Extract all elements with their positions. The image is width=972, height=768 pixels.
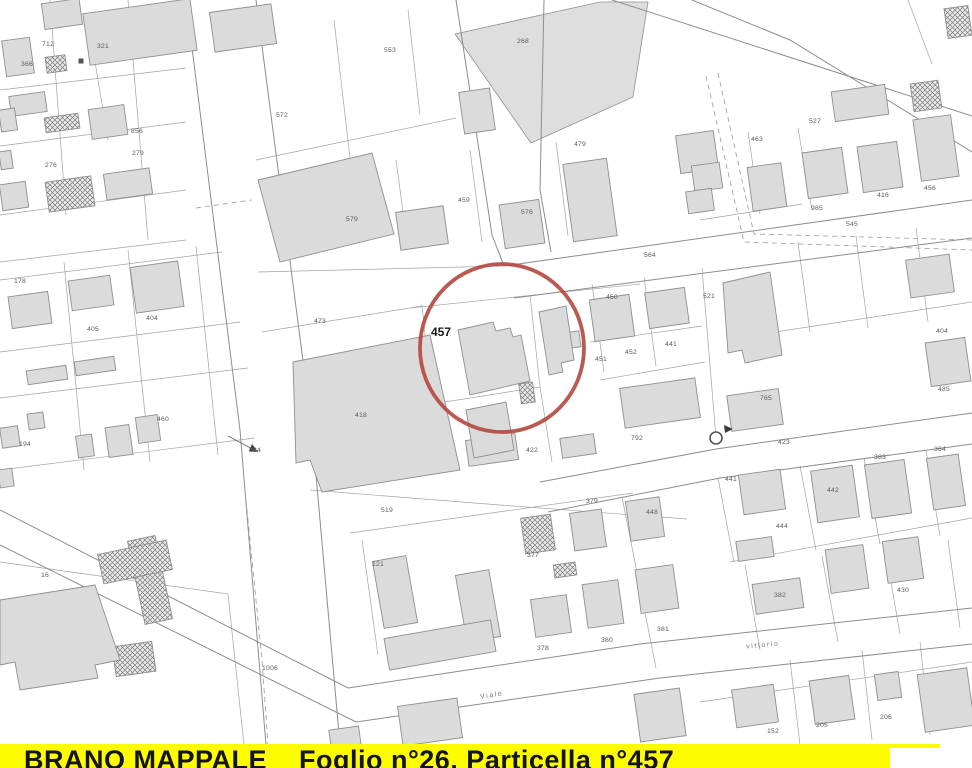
parcel-number-label: 451 [595, 356, 607, 363]
dashed-boundary [246, 500, 268, 745]
building-footprint [727, 389, 784, 432]
parcel-number-label: 378 [537, 645, 549, 652]
parcel-number-label: 450 [606, 294, 618, 301]
building-footprint [560, 434, 596, 459]
parcel-number-label: 712 [42, 41, 54, 48]
parcel-number-label: 194 [19, 441, 31, 448]
parcel-boundary [862, 650, 872, 740]
building-footprint [864, 460, 911, 519]
parcel-number-label: 463 [751, 136, 763, 143]
parcel-number-label: 279 [132, 150, 144, 157]
parcel-number-label: 456 [924, 185, 936, 192]
building-footprint [625, 497, 664, 541]
building-footprint [0, 468, 14, 488]
parcel-number-label: 442 [827, 487, 839, 494]
parcel-boundary [228, 594, 244, 745]
parcel-number-label: 579 [346, 216, 358, 223]
building-footprint [738, 469, 785, 514]
building-footprint [874, 672, 901, 701]
parcel-number-label: 382 [774, 592, 786, 599]
building-footprint [499, 199, 545, 248]
building-footprint [0, 181, 29, 210]
parcel-number-label: 576 [521, 209, 533, 216]
building-footprint [0, 108, 18, 132]
parcel-number-label: 545 [846, 221, 858, 228]
parcel-number-label: 856 [131, 128, 143, 135]
road-edge [186, 0, 266, 745]
building-footprint [925, 337, 971, 386]
building-footprint-hatched [521, 514, 556, 554]
dashed-boundary [196, 200, 252, 208]
parcel-number-label: 479 [574, 141, 586, 148]
parcel-number-label: 121 [372, 561, 384, 568]
building-footprint [582, 580, 624, 629]
parcel-number-label: 527 [809, 118, 821, 125]
building-footprint [0, 150, 13, 169]
building-footprint [563, 158, 617, 241]
building-footprint [747, 163, 787, 211]
building-footprint [634, 688, 686, 742]
building-footprint [459, 88, 496, 134]
parcel-boundary [408, 10, 420, 115]
parcel-number-label: 441 [725, 476, 737, 483]
parcel-number-label: 1006 [262, 665, 278, 672]
parcel-boundary [334, 20, 350, 158]
parcel-boundary [718, 478, 734, 562]
well-symbol [710, 432, 722, 444]
building-footprint [0, 426, 20, 448]
parcel-number-label: 383 [874, 454, 886, 461]
highlighted-parcel-number: 457 [431, 325, 451, 339]
building-footprint [398, 698, 463, 745]
building-footprint [686, 188, 715, 213]
building-footprint [811, 465, 860, 522]
parcel-number-label: 473 [314, 318, 326, 325]
parcel-boundary [362, 540, 378, 655]
building-footprint [691, 162, 722, 192]
parcel-number-label: 377 [527, 552, 539, 559]
building-footprint [26, 365, 68, 384]
building-footprint-hatched [45, 55, 67, 74]
parcel-boundary [0, 252, 222, 280]
parcel-boundary [948, 540, 960, 628]
parcel-number-label: 452 [625, 349, 637, 356]
parcel-number-label: 404 [146, 315, 158, 322]
parcel-number-label: 321 [97, 43, 109, 50]
building-footprint [74, 356, 116, 375]
parcel-number-label: 444 [776, 523, 788, 530]
building-footprint [809, 675, 855, 724]
caption-banner: BRANO MAPPALE Foglio n°26, Particella n°… [0, 747, 890, 768]
parcel-number-label: 521 [703, 293, 715, 300]
parcel-boundary [196, 246, 218, 455]
building-footprint-hatched [519, 382, 536, 404]
parcel-number-label: 380 [601, 637, 613, 644]
parcel-number-label: 364 [934, 446, 946, 453]
building-footprint-hatched [910, 80, 942, 112]
building-footprint-hatched [944, 6, 972, 39]
parcel-boundary [0, 240, 186, 262]
building-footprint [293, 335, 460, 492]
parcel-boundary [256, 118, 456, 160]
parcel-boundary [798, 242, 810, 332]
building-footprint [736, 537, 774, 562]
street-name-label: Viale [480, 690, 504, 700]
parcel-number-label: 418 [355, 412, 367, 419]
parcel-number-label: 366 [21, 61, 33, 68]
building-footprint [570, 509, 607, 551]
parcel-boundary [908, 0, 932, 64]
parcel-boundary [540, 387, 552, 462]
building-footprint [825, 545, 869, 594]
parcel-boundary [530, 295, 540, 387]
building-footprint [68, 275, 114, 311]
parcel-number-label: 422 [526, 447, 538, 454]
building-footprint [831, 84, 889, 121]
building-footprint [723, 272, 782, 363]
parcel-boundary [262, 306, 422, 332]
building-footprint [589, 294, 634, 341]
building-footprint [41, 0, 82, 30]
parcel-number-label: 564 [644, 252, 656, 259]
parcel-number-label: 381 [657, 626, 669, 633]
building-footprint [620, 378, 701, 428]
building-footprint [384, 620, 496, 670]
parcel-number-label: 459 [458, 197, 470, 204]
buildings-layer [0, 0, 972, 745]
building-footprint [906, 254, 955, 298]
parcel-number-label: 234 [249, 447, 261, 454]
parcel-number-label: 416 [877, 192, 889, 199]
street-name-label: vittorio [746, 641, 780, 651]
building-footprint [857, 141, 903, 192]
building-footprint [917, 668, 972, 732]
parcel-number-label: 206 [880, 714, 892, 721]
building-footprint [913, 115, 959, 182]
building-footprint [531, 595, 572, 638]
parcel-number-label: 423 [778, 439, 790, 446]
parcel-boundary [790, 660, 800, 745]
parcel-number-label: 792 [631, 435, 643, 442]
point-symbol [79, 59, 84, 64]
building-footprint [927, 454, 966, 510]
building-footprint [732, 684, 779, 727]
parcel-number-label: 765 [760, 395, 772, 402]
building-footprint [76, 434, 95, 458]
building-footprint [635, 565, 679, 614]
building-footprint-hatched [45, 176, 95, 212]
parcel-number-label: 276 [45, 162, 57, 169]
cadastral-map: 3663217122798562761785725532685794595764… [0, 0, 972, 745]
parcel-number-label: 405 [87, 326, 99, 333]
parcel-number-label: 985 [811, 205, 823, 212]
building-footprint [27, 412, 45, 430]
building-footprint [882, 537, 923, 584]
building-footprint-hatched [553, 562, 577, 578]
parcel-number-label: 152 [767, 728, 779, 735]
parcel-number-label: 178 [14, 278, 26, 285]
parcel-number-label: 519 [381, 507, 393, 514]
building-footprint [83, 0, 197, 65]
parcel-number-label: 16 [41, 572, 49, 579]
parcel-boundary [0, 322, 240, 352]
parcel-number-label: 441 [665, 341, 677, 348]
parcel-boundary [856, 236, 868, 328]
parcel-number-label: 205 [816, 722, 828, 729]
cadastral-map-svg: 3663217122798562761785725532685794595764… [0, 0, 972, 745]
building-footprint [130, 261, 184, 313]
parcel-number-label: 460 [157, 416, 169, 423]
building-footprint [396, 206, 449, 250]
parcel-number-label: 404 [936, 328, 948, 335]
parcel-number-label: 268 [517, 38, 529, 45]
parcel-number-label: 485 [938, 386, 950, 393]
building-footprint [88, 105, 128, 140]
caption-text: BRANO MAPPALE Foglio n°26, Particella n°… [0, 747, 674, 768]
parcel-number-label: 379 [586, 498, 598, 505]
parcel-boundary [470, 150, 482, 242]
parcel-number-label: 572 [276, 112, 288, 119]
building-footprint [210, 4, 277, 52]
building-footprint [2, 37, 35, 77]
building-footprint [105, 425, 133, 458]
building-footprint [645, 287, 690, 328]
parcel-number-label: 553 [384, 47, 396, 54]
building-footprint [8, 291, 52, 328]
building-footprint-hatched [44, 113, 80, 133]
parcel-boundary [600, 362, 705, 380]
parcel-number-label: 430 [897, 587, 909, 594]
building-footprint [0, 585, 120, 690]
building-footprint [539, 306, 574, 375]
building-footprint [329, 726, 361, 745]
building-footprint [802, 147, 848, 198]
parcel-number-label: 448 [646, 509, 658, 516]
